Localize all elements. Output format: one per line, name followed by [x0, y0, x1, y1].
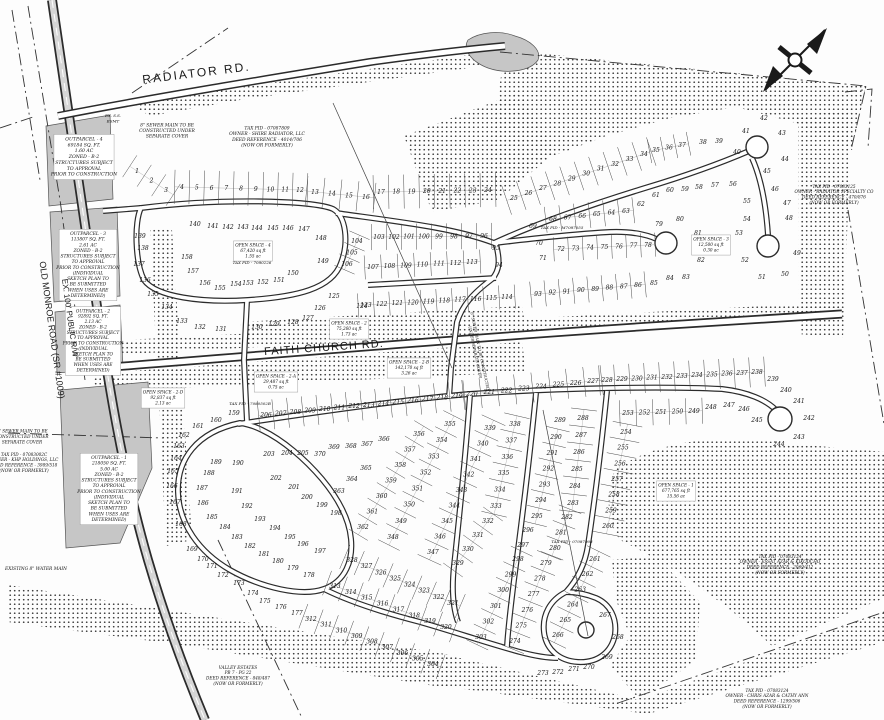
- lot-number: 222: [500, 387, 513, 394]
- lot-number: 262: [581, 571, 594, 578]
- lot-number: 340: [477, 441, 489, 448]
- lot-number: 112: [450, 260, 462, 267]
- lot-number: 236: [720, 371, 733, 378]
- lot-number: 25: [509, 195, 518, 202]
- lot-number: 6: [210, 185, 214, 192]
- lot-number: 197: [314, 548, 326, 555]
- lot-number: 266: [551, 632, 564, 639]
- lot-number: 111: [433, 261, 444, 268]
- lot-number: 43: [777, 130, 786, 137]
- svg-text:TAX PID - 07087809OWNER - SHIR: TAX PID - 07087809OWNER - SHIRE RADIATOR…: [229, 127, 305, 149]
- lot-number: 228: [600, 377, 613, 384]
- lot-number: 217: [421, 396, 434, 403]
- outparcel-1-note: OUTPARCEL - 1218050 SQ. FT.5.00 ACZONED …: [76, 453, 141, 525]
- lot-number: 152: [257, 279, 269, 286]
- lot-number: 155: [214, 285, 226, 292]
- lot-number: 1: [135, 168, 139, 175]
- lot-number: 337: [505, 437, 517, 444]
- lot-number: 347: [427, 549, 439, 556]
- lot-number: 219: [450, 393, 463, 400]
- svg-text:TAX PID - 07083002COWNER - KHP: TAX PID - 07083002COWNER - KHP HOLDINGS,…: [0, 452, 59, 473]
- lot-number: 44: [780, 156, 789, 163]
- lot-number: 154: [230, 281, 242, 288]
- lot-number: 102: [388, 234, 400, 241]
- lot-number: 88: [606, 285, 614, 292]
- lot-number: 201: [287, 484, 299, 491]
- lot-number: 103: [373, 234, 385, 241]
- svg-text:EXISTING 8" WATER MAIN: EXISTING 8" WATER MAIN: [4, 567, 67, 572]
- lot-number: 370: [314, 451, 326, 458]
- lot-number: 203: [262, 451, 275, 458]
- lot-number: 307: [382, 644, 394, 651]
- lot-number: 272: [551, 669, 564, 676]
- lot-number: 325: [390, 575, 402, 582]
- lot-number: 193: [254, 516, 266, 523]
- lot-number: 233: [675, 373, 688, 380]
- lot-number: 97: [465, 233, 473, 240]
- lot-number: 120: [407, 299, 419, 306]
- lot-number: 255: [616, 445, 629, 452]
- lot-number: 89: [591, 286, 599, 293]
- lot-number: 194: [269, 525, 281, 532]
- lot-number: 169: [186, 546, 198, 553]
- lot-number: 315: [361, 595, 373, 602]
- lot-number: 316: [377, 601, 389, 608]
- lot-number: 86: [634, 282, 642, 289]
- lot-number: 244: [772, 441, 785, 448]
- lot-number: 82: [697, 257, 705, 264]
- lot-number: 23: [468, 187, 477, 194]
- lot-number: 363: [333, 488, 345, 495]
- lot-number: 286: [572, 449, 585, 456]
- lot-number: 73: [572, 245, 580, 252]
- lot-number: 72: [557, 246, 565, 253]
- lot-number: 68: [549, 216, 557, 223]
- lot-number: 260: [601, 523, 614, 530]
- lot-number: 31: [597, 166, 605, 173]
- lot-number: 3: [164, 187, 168, 194]
- lot-number: 214: [377, 400, 390, 407]
- svg-text:TAX PID - M7087055: TAX PID - M7087055: [541, 225, 584, 230]
- lot-number: 67: [564, 214, 572, 221]
- lot-number: 13: [311, 189, 319, 196]
- lot-number: 36: [665, 145, 673, 152]
- lot-number: 100: [418, 234, 430, 241]
- lot-number: 302: [483, 618, 495, 625]
- lot-number: 230: [630, 375, 643, 382]
- lot-number: 196: [297, 541, 309, 548]
- lot-number: 263: [573, 586, 586, 593]
- lot-number: 171: [206, 563, 217, 570]
- lot-number: 293: [538, 481, 551, 488]
- lot-number: 237: [735, 370, 748, 377]
- lot-number: 261: [588, 556, 600, 563]
- lot-number: 210: [318, 406, 331, 413]
- lot-number: 127: [302, 315, 314, 322]
- lot-number: 257: [610, 476, 623, 483]
- lot-number: 70: [535, 240, 543, 247]
- lot-number: 290: [549, 434, 562, 441]
- lot-number: 328: [346, 557, 358, 564]
- lot-number: 166: [166, 483, 178, 490]
- lot-number: 278: [533, 576, 546, 583]
- open-space-2-label: OPEN SPACE - 275,260 sq ft1.73 ac: [330, 319, 369, 339]
- sewer-note-top-note: 8" SEWER MAIN TO BECONSTRUCTED UNDERSEPA…: [139, 123, 195, 139]
- lot-number: 205: [296, 450, 309, 457]
- lot-number: 212: [347, 403, 360, 410]
- lot-number: 189: [210, 459, 222, 466]
- lot-number: 37: [678, 142, 686, 149]
- lot-number: 105: [346, 250, 358, 257]
- lot-number: 17: [377, 189, 385, 196]
- lot-number: 107: [367, 264, 379, 271]
- lot-number: 334: [494, 487, 506, 494]
- lot-number: 291: [545, 450, 557, 457]
- lot-number: 146: [282, 225, 294, 232]
- lot-number: 9: [254, 186, 258, 193]
- lot-number: 341: [470, 456, 481, 463]
- lot-number: 192: [241, 503, 253, 510]
- lot-number: 195: [284, 534, 296, 541]
- lot-number: 355: [444, 421, 456, 428]
- lot-number: 76: [615, 243, 623, 250]
- lot-number: 101: [403, 234, 414, 241]
- lot-number: 350: [404, 502, 416, 509]
- lot-number: 158: [181, 254, 193, 261]
- lot-number: 21: [437, 188, 446, 195]
- lot-number: 75: [601, 244, 609, 251]
- lot-number: 234: [690, 372, 703, 379]
- lot-number: 274: [508, 638, 521, 645]
- lot-number: 106: [341, 261, 353, 268]
- lot-number: 238: [750, 369, 763, 376]
- lot-number: 128: [287, 319, 299, 326]
- lot-number: 232: [660, 374, 673, 381]
- lot-number: 362: [357, 524, 369, 531]
- lot-number: 32: [611, 161, 619, 168]
- lot-number: 99: [435, 233, 443, 240]
- lot-number: 14: [328, 191, 336, 198]
- lot-number: 198: [330, 510, 342, 517]
- open-space-2b-label: OPEN SPACE - 2-B142,170 sq ft3.26 ac: [387, 358, 431, 378]
- lot-number: 312: [305, 616, 317, 623]
- lot-number: 168: [175, 521, 187, 528]
- lot-number: 345: [442, 518, 454, 525]
- lot-number: 170: [197, 556, 209, 563]
- lot-number: 7: [224, 185, 228, 192]
- lot-number: 209: [303, 408, 316, 415]
- lot-number: 2: [149, 178, 154, 185]
- lot-number: 26: [524, 190, 533, 197]
- lot-number: 24: [483, 187, 492, 194]
- lot-number: 163: [173, 443, 185, 450]
- lot-number: 190: [232, 460, 244, 467]
- lot-number: 162: [178, 432, 190, 439]
- lot-number: 46: [770, 186, 779, 193]
- lot-number: 206: [259, 412, 272, 419]
- lot-number: 245: [750, 417, 763, 424]
- lot-number: 87: [620, 283, 628, 290]
- lot-number: 95: [492, 245, 500, 252]
- lot-number: 53: [735, 230, 743, 237]
- lot-number: 281: [554, 530, 566, 537]
- lot-number: 149: [317, 258, 329, 265]
- lot-number: 253: [621, 410, 634, 417]
- lot-number: 179: [287, 565, 299, 572]
- lot-number: 256: [613, 460, 626, 467]
- lot-number: 177: [291, 610, 303, 617]
- lot-number: 85: [650, 280, 658, 287]
- lot-number: 52: [741, 257, 749, 264]
- lot-number: 204: [280, 450, 293, 457]
- lot-number: 284: [568, 483, 581, 490]
- lot-number: 125: [328, 293, 340, 300]
- lot-number: 176: [275, 604, 287, 611]
- lot-number: 63: [622, 208, 630, 215]
- lot-number: 296: [521, 527, 534, 534]
- tax-pid-khp-note: TAX PID - 07083002COWNER - KHP HOLDINGS,…: [0, 452, 59, 473]
- lot-number: 306: [397, 650, 409, 657]
- lot-number: 335: [498, 470, 510, 477]
- lot-number: 301: [490, 603, 501, 610]
- existing-water-main-note: EXISTING 8" WATER MAIN: [4, 567, 67, 572]
- lot-number: 239: [766, 376, 779, 383]
- sewer-note-left-note: 8" SEWER MAIN TO BECONSTRUCTED UNDERSEPA…: [0, 429, 49, 445]
- lot-number: 98: [450, 233, 458, 240]
- valley-estates-note: VALLEY ESTATESPB 7 - PG 22DEED REFERENCE…: [205, 665, 270, 686]
- lot-number: 191: [231, 488, 242, 495]
- lot-number: 346: [434, 534, 446, 541]
- lot-number: 156: [199, 280, 211, 287]
- lot-number: 108: [384, 263, 396, 270]
- lot-number: 267: [598, 612, 611, 619]
- lot-number: 116: [470, 296, 482, 303]
- lot-number: 122: [376, 301, 388, 308]
- lot-number: 11: [281, 187, 289, 194]
- lot-number: 224: [534, 384, 547, 391]
- lot-number: 28: [553, 180, 562, 187]
- lot-number: 8: [239, 186, 243, 193]
- lot-number: 136: [139, 277, 151, 284]
- lot-number: 182: [244, 543, 256, 550]
- lot-number: 80: [676, 216, 684, 223]
- lot-number: 258: [607, 492, 620, 499]
- svg-text:8" SEWER MAIN TO BECONSTRUCTED: 8" SEWER MAIN TO BECONSTRUCTED UNDERSEPA…: [0, 429, 49, 445]
- lot-number: 354: [436, 437, 448, 444]
- lot-number: 62: [637, 201, 645, 208]
- lot-number: 39: [715, 138, 723, 145]
- esmt-note-note: EX. S.S.ESMT: [104, 113, 121, 123]
- lot-number: 47: [782, 200, 791, 207]
- lot-number: 361: [367, 509, 378, 516]
- lot-number: 118: [439, 298, 451, 305]
- lot-number: 115: [486, 295, 498, 302]
- lot-number: 119: [423, 298, 435, 305]
- lot-number: 59: [681, 186, 689, 193]
- lot-number: 247: [722, 402, 735, 409]
- lot-number: 336: [502, 454, 514, 461]
- tax-pid-chris-note: TAX PID - 07083124OWNER - CHRIS AZAR & C…: [726, 688, 809, 709]
- lot-number: 181: [258, 551, 269, 558]
- lot-number: 223: [517, 385, 530, 392]
- lot-number: 310: [336, 627, 348, 634]
- lot-number: 138: [137, 245, 149, 252]
- lot-number: 218: [436, 394, 449, 401]
- lot-number: 66: [578, 213, 586, 220]
- lot-number: 300: [497, 587, 509, 594]
- lot-number: 77: [630, 243, 638, 250]
- lot-number: 353: [428, 453, 440, 460]
- lot-number: 343: [456, 487, 468, 494]
- lot-number: 243: [792, 434, 805, 441]
- lot-number: 297: [516, 542, 529, 549]
- lot-number: 227: [586, 378, 599, 385]
- lot-number: 271: [567, 666, 579, 673]
- lot-number: 55: [743, 198, 751, 205]
- open-space-3-label: OPEN SPACE - 312,500 sq ft0.30 ac: [692, 235, 731, 255]
- lot-number: 279: [539, 560, 552, 567]
- lot-number: 211: [333, 405, 345, 412]
- lot-number: 254: [619, 429, 632, 436]
- lot-number: 33: [626, 156, 634, 163]
- lot-number: 173: [233, 580, 245, 587]
- lot-number: 83: [682, 274, 690, 281]
- lot-number: 303: [475, 634, 487, 641]
- lot-number: 240: [779, 387, 792, 394]
- lot-number: 174: [247, 590, 259, 597]
- lot-number: 202: [269, 475, 282, 482]
- lot-number: 351: [412, 486, 423, 493]
- lot-number: 368: [345, 443, 357, 450]
- lot-number: 172: [217, 572, 229, 579]
- lot-number: 42: [759, 115, 768, 122]
- svg-text:TAX PID - 07087908: TAX PID - 07087908: [551, 539, 593, 544]
- lot-number: 145: [267, 225, 279, 232]
- svg-text:EX. S.S.ESMT: EX. S.S.ESMT: [104, 113, 121, 123]
- svg-text:TAX PID - 07083124OWNER - CHRI: TAX PID - 07083124OWNER - CHRIS AZAR & C…: [726, 688, 809, 709]
- lot-number: 84: [666, 275, 674, 282]
- open-space-4-label: OPEN SPACE - 467,420 sq ft1.55 ac: [234, 241, 273, 261]
- lot-number: 309: [351, 633, 363, 640]
- lot-number: 265: [559, 617, 572, 624]
- lot-number: 143: [237, 224, 249, 231]
- lot-number: 144: [251, 225, 263, 232]
- lot-number: 29: [567, 175, 576, 182]
- lot-number: 161: [192, 423, 203, 430]
- lot-number: 139: [134, 233, 146, 240]
- lot-number: 216: [406, 397, 419, 404]
- lot-number: 283: [566, 500, 579, 507]
- lot-number: 360: [376, 493, 388, 500]
- lot-number: 94: [495, 262, 503, 269]
- plat-drawing: 1234567891011121314151617181920212223242…: [0, 0, 884, 720]
- lot-number: 150: [287, 270, 299, 277]
- lot-number: 185: [206, 514, 218, 521]
- lot-number: 280: [548, 545, 561, 552]
- lot-number: 35: [652, 147, 660, 154]
- lot-number: 199: [316, 502, 328, 509]
- lot-number: 252: [638, 410, 651, 417]
- tax-pid-small-3-note: TAX PID - 7080502B: [229, 401, 271, 406]
- lot-number: 364: [346, 476, 358, 483]
- lot-number: 129: [268, 321, 280, 328]
- lot-number: 93: [534, 291, 542, 298]
- lot-number: 242: [802, 415, 815, 422]
- lot-number: 54: [743, 216, 751, 223]
- lot-number: 41: [741, 128, 750, 135]
- lot-number: 213: [362, 402, 375, 409]
- lot-number: 126: [314, 305, 326, 312]
- lot-number: 326: [375, 569, 387, 576]
- lot-number: 273: [536, 670, 549, 677]
- lot-number: 130: [251, 324, 263, 331]
- lot-number: 299: [504, 572, 517, 579]
- lot-number: 19: [408, 188, 416, 195]
- lot-number: 330: [462, 546, 474, 553]
- lot-number: 56: [729, 181, 737, 188]
- lot-number: 225: [552, 382, 565, 389]
- lot-number: 10: [267, 186, 275, 193]
- lot-number: 241: [792, 398, 804, 405]
- lot-number: 275: [514, 622, 527, 629]
- lot-number: 339: [484, 425, 496, 432]
- lot-number: 18: [392, 189, 400, 196]
- lot-number: 140: [189, 221, 201, 228]
- lot-number: 318: [409, 612, 421, 619]
- tax-pid-small-4-note: TAX PID - 07087908: [551, 539, 593, 544]
- lot-number: 65: [593, 211, 601, 218]
- lot-number: 34: [640, 151, 648, 158]
- lot-number: 348: [387, 534, 399, 541]
- lot-number: 45: [762, 168, 771, 175]
- lot-number: 79: [655, 221, 663, 228]
- lot-number: 147: [298, 226, 310, 233]
- lot-number: 175: [259, 598, 271, 605]
- lot-number: 333: [490, 503, 502, 510]
- lot-number: 289: [553, 417, 566, 424]
- lot-number: 51: [758, 274, 766, 281]
- lot-number: 246: [737, 406, 750, 413]
- lot-number: 92: [548, 290, 556, 297]
- lot-number: 344: [449, 503, 461, 510]
- lot-number: 134: [161, 304, 173, 311]
- lot-number: 320: [440, 624, 452, 631]
- lot-number: 159: [228, 410, 240, 417]
- lot-number: 356: [413, 431, 425, 438]
- lot-number: 269: [600, 654, 613, 661]
- lot-number: 317: [393, 606, 405, 613]
- lot-number: 259: [604, 507, 617, 514]
- lot-number: 250: [671, 409, 684, 416]
- lot-number: 221: [483, 389, 495, 396]
- lot-number: 249: [687, 408, 700, 415]
- lot-number: 186: [197, 500, 209, 507]
- lot-number: 22: [453, 188, 462, 195]
- lot-number: 229: [615, 376, 628, 383]
- lot-number: 30: [582, 171, 590, 178]
- lot-number: 329: [452, 560, 464, 567]
- outparcel-4-note: OUTPARCEL - 469184 SQ. FT.1.60 ACZONED -…: [50, 134, 118, 179]
- lot-number: 367: [361, 441, 373, 448]
- lot-number: 104: [351, 238, 363, 245]
- tax-pid-small-1-note: TAX PID - M7087055: [541, 225, 584, 230]
- lot-number: 180: [272, 558, 284, 565]
- lot-number: 305: [412, 655, 424, 662]
- lot-number: 276: [521, 607, 534, 614]
- lot-number: 208: [289, 409, 302, 416]
- lot-number: 358: [395, 462, 407, 469]
- lot-number: 231: [645, 375, 657, 382]
